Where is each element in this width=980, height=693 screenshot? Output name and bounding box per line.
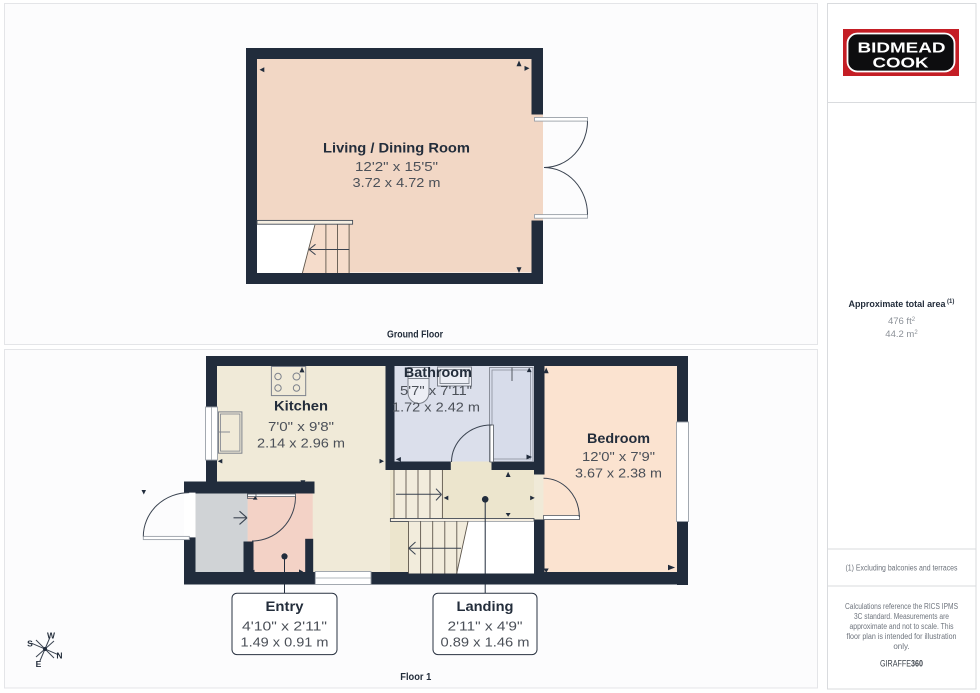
svg-text:1.49 x 0.91 m: 1.49 x 0.91 m [241, 635, 329, 650]
svg-text:Living / Dining Room: Living / Dining Room [323, 140, 470, 156]
svg-text:5'7" x 7'11": 5'7" x 7'11" [400, 383, 472, 398]
svg-text:0.89 x 1.46 m: 0.89 x 1.46 m [441, 635, 530, 650]
svg-text:(1) Excluding balconies and te: (1) Excluding balconies and terraces [846, 564, 958, 573]
svg-text:approximate and not to scale.: approximate and not to scale. This [850, 622, 954, 631]
svg-text:3.67 x 2.38 m: 3.67 x 2.38 m [575, 466, 662, 481]
svg-text:2'11" x 4'9": 2'11" x 4'9" [448, 619, 523, 634]
svg-text:12'2" x 15'5": 12'2" x 15'5" [355, 159, 438, 174]
svg-text:N: N [56, 651, 62, 661]
svg-text:Calculations reference the RIC: Calculations reference the RICS IPMS [845, 602, 958, 611]
svg-text:E: E [36, 659, 42, 669]
svg-text:Floor 1: Floor 1 [400, 672, 431, 683]
svg-text:W: W [47, 631, 56, 641]
svg-text:3C standard. Measurements are: 3C standard. Measurements are [854, 612, 949, 621]
svg-text:COOK: COOK [873, 55, 929, 72]
svg-text:floor plan is intended for ill: floor plan is intended for illustration [847, 632, 957, 641]
svg-text:Ground Floor: Ground Floor [387, 330, 443, 341]
svg-text:GIRAFFE360: GIRAFFE360 [880, 659, 923, 669]
svg-text:Approximate total area: Approximate total area [849, 299, 947, 310]
svg-text:only.: only. [893, 642, 909, 651]
svg-text:12'0" x 7'9": 12'0" x 7'9" [582, 449, 655, 464]
svg-text:1.72 x 2.42 m: 1.72 x 2.42 m [392, 400, 480, 415]
svg-text:3.72 x 4.72 m: 3.72 x 4.72 m [353, 175, 441, 190]
svg-text:Entry: Entry [266, 599, 305, 614]
svg-text:4'10" x 2'11": 4'10" x 2'11" [242, 619, 327, 634]
svg-text:Bathroom: Bathroom [404, 365, 472, 380]
svg-text:44.2 m2: 44.2 m2 [885, 329, 918, 340]
svg-text:2.14 x 2.96 m: 2.14 x 2.96 m [257, 436, 345, 451]
svg-text:Kitchen: Kitchen [274, 399, 328, 414]
svg-text:S: S [27, 639, 33, 649]
svg-text:(1): (1) [947, 299, 954, 305]
svg-text:476 ft2: 476 ft2 [888, 316, 916, 327]
svg-text:7'0" x 9'8": 7'0" x 9'8" [268, 419, 334, 434]
svg-text:Landing: Landing [457, 599, 514, 614]
svg-text:Bedroom: Bedroom [587, 431, 650, 446]
